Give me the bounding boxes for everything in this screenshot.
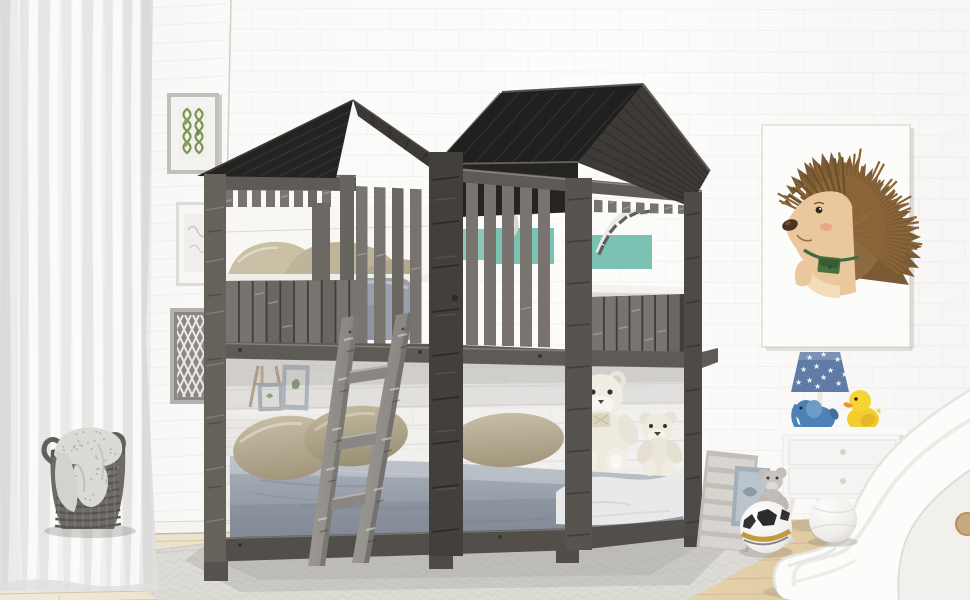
svg-text:★: ★ bbox=[835, 379, 842, 388]
svg-text:★: ★ bbox=[841, 370, 848, 379]
svg-text:★: ★ bbox=[795, 378, 802, 387]
svg-text:★: ★ bbox=[800, 365, 807, 374]
svg-text:★: ★ bbox=[806, 353, 813, 362]
svg-text:★: ★ bbox=[820, 373, 827, 382]
svg-text:★: ★ bbox=[813, 362, 820, 371]
svg-text:★: ★ bbox=[820, 350, 827, 359]
svg-text:★: ★ bbox=[806, 376, 813, 385]
svg-text:★: ★ bbox=[827, 366, 834, 375]
svg-text:★: ★ bbox=[814, 382, 821, 391]
svg-text:★: ★ bbox=[834, 355, 841, 364]
